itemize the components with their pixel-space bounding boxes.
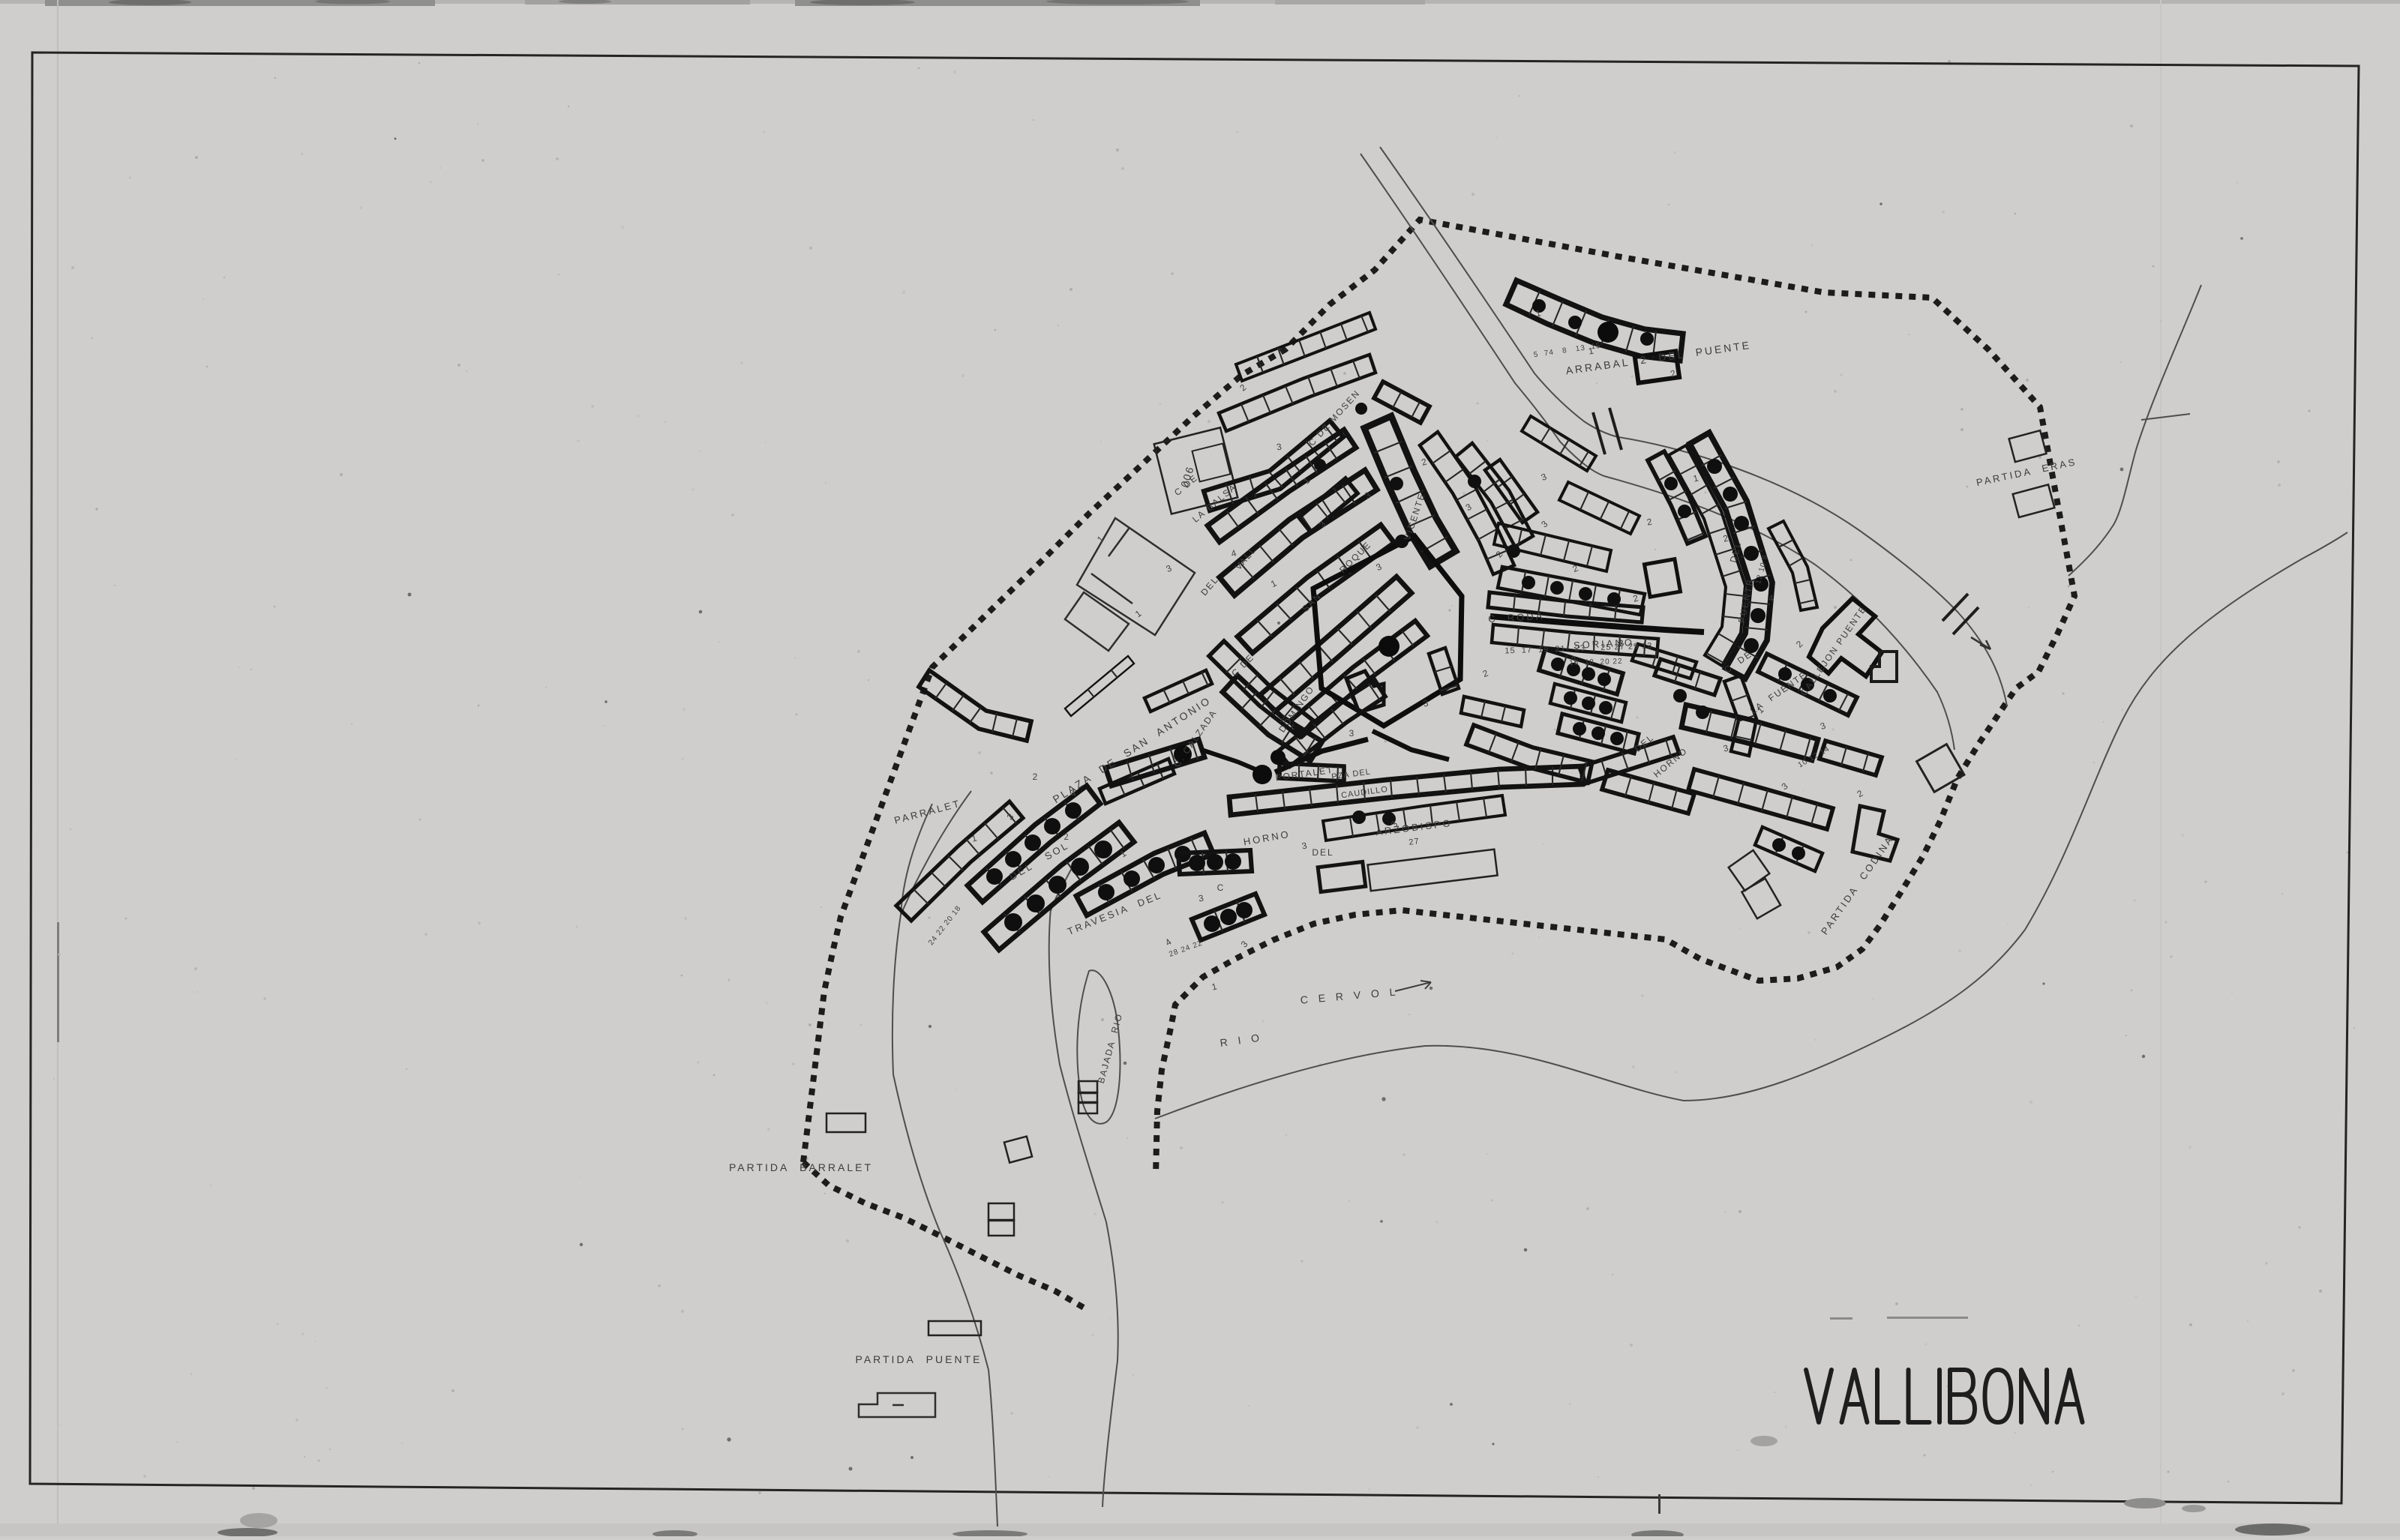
svg-text:DEL: DEL [1312,847,1333,858]
svg-text:PARTIDA BARRALET: PARTIDA BARRALET [729,1161,873,1173]
svg-text:PARTIDA PUENTE: PARTIDA PUENTE [856,1353,982,1365]
svg-text:2: 2 [1033,771,1038,782]
svg-text:27: 27 [1408,837,1420,847]
svg-text:3: 3 [1348,728,1354,739]
svg-text:C: C [1217,882,1225,893]
